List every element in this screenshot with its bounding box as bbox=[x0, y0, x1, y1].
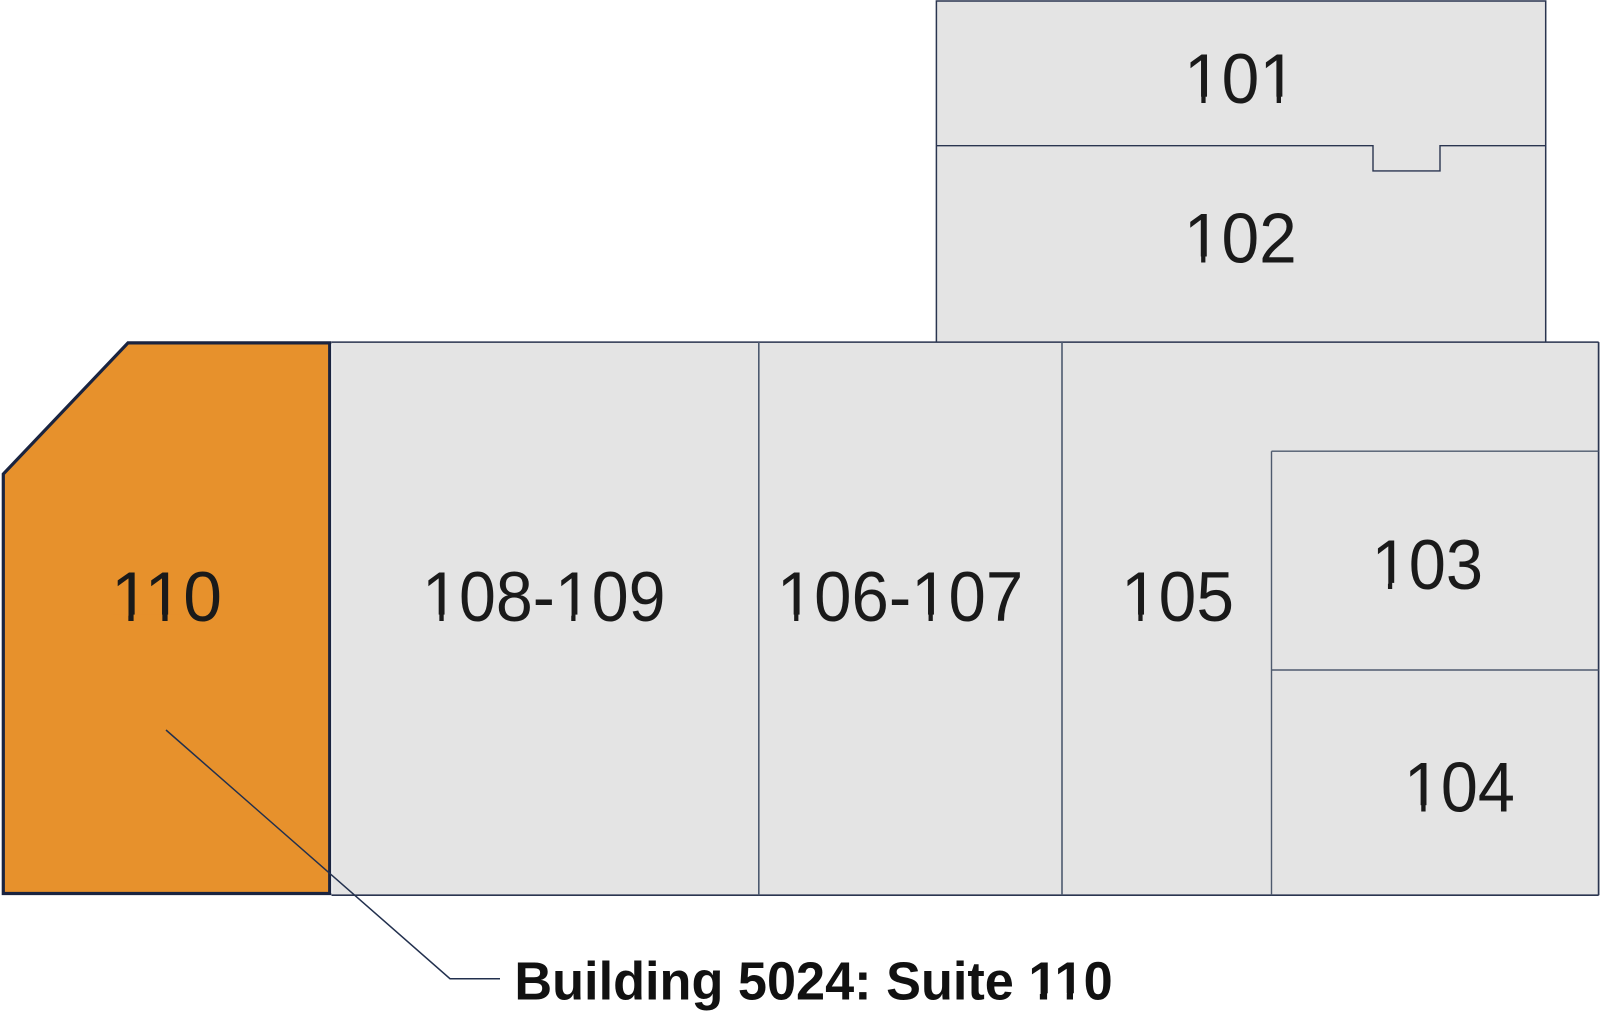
svg-text:106-107: 106-107 bbox=[777, 557, 1024, 636]
svg-text:108-109: 108-109 bbox=[422, 557, 666, 636]
svg-text:101: 101 bbox=[1184, 39, 1297, 118]
svg-text:Building 5024: Suite 110: Building 5024: Suite 110 bbox=[514, 952, 1112, 1012]
svg-text:102: 102 bbox=[1184, 199, 1297, 278]
svg-text:105: 105 bbox=[1121, 557, 1234, 636]
svg-text:110: 110 bbox=[111, 557, 222, 636]
svg-text:103: 103 bbox=[1372, 525, 1484, 604]
svg-text:104: 104 bbox=[1404, 747, 1515, 826]
